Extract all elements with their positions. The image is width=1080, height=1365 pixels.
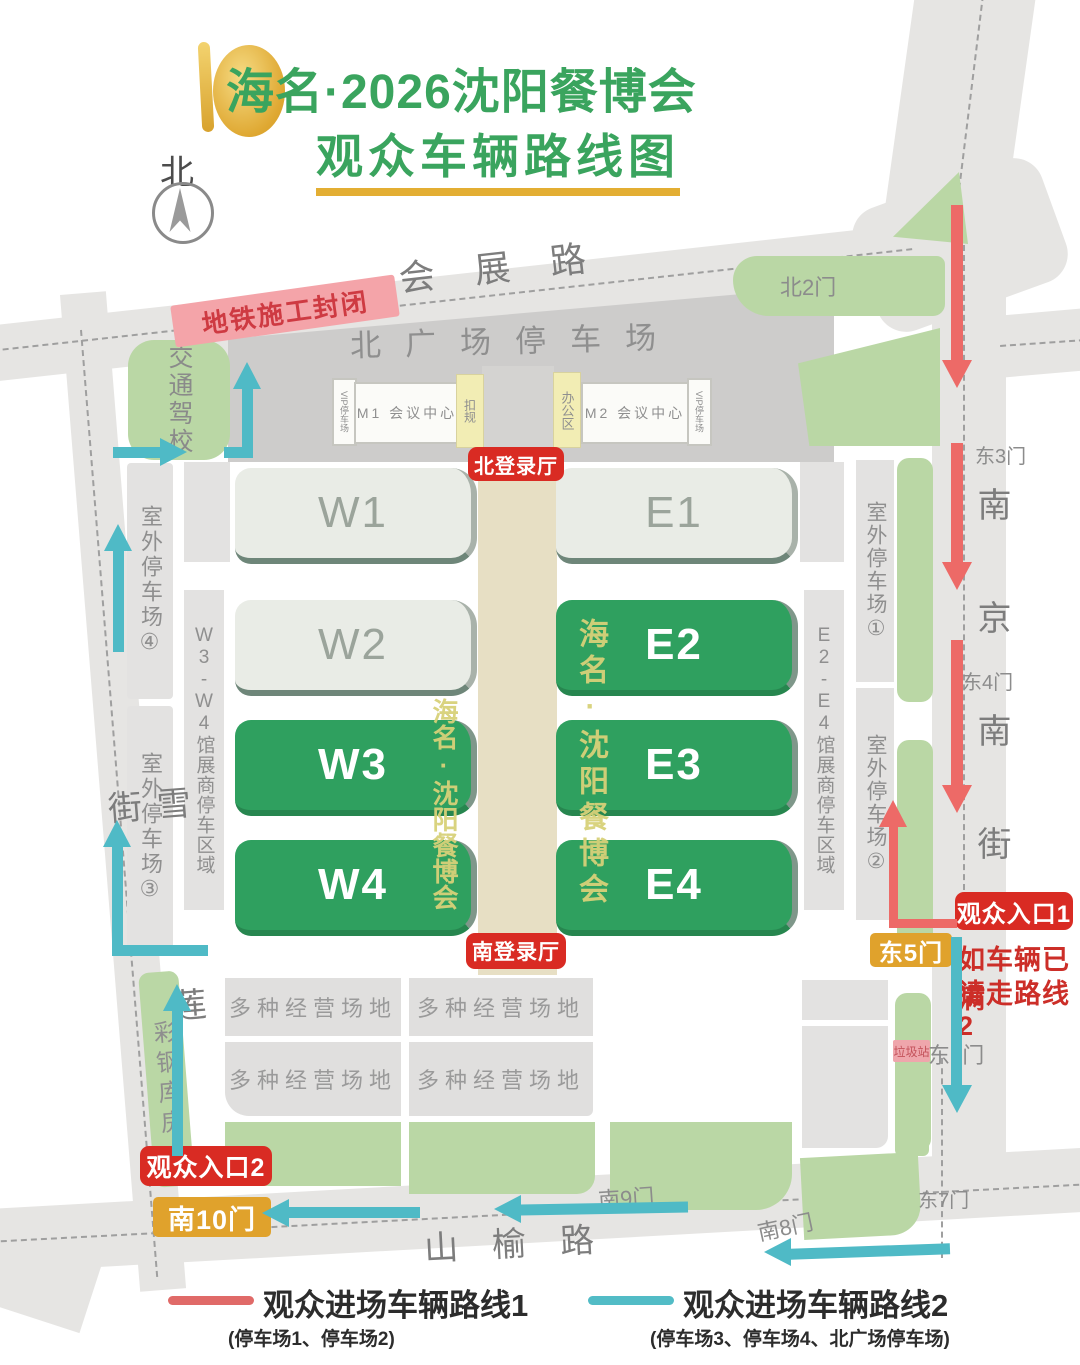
yellow-box-left: 扣规 [456, 374, 484, 448]
hall-e1-label: E1 [645, 488, 703, 538]
route1-turn-horizontal [889, 919, 957, 928]
legend-route1-sub: (停车场1、停车场2) [228, 1324, 395, 1351]
gate-east4-label: 东4门 [962, 666, 1013, 695]
road-nanjing-label: 南京南街 [967, 487, 1016, 939]
hall-e1: E1 [556, 468, 798, 564]
route2-south8-head [764, 1238, 791, 1266]
multi-business-3: 多种经营场地 [225, 1042, 401, 1116]
multi-business-2-label: 多种经营场地 [417, 991, 585, 1023]
outdoor-parking-1-label: 室外停车场① [860, 501, 890, 642]
office-area: 办公区 [553, 372, 581, 448]
route2-parking3-foot [112, 945, 208, 956]
green-strip-east-a [897, 458, 933, 702]
hall-w1-label: W1 [318, 488, 388, 538]
route2-school-head [160, 438, 187, 466]
e-exhibitor-parking: E2-E4馆展商停车区域 [804, 590, 844, 910]
unlabeled-block-right [800, 462, 844, 562]
multi-business-4: 多种经营场地 [409, 1042, 593, 1116]
legend-route2-sub: (停车场3、停车场4、北广场停车场) [650, 1324, 950, 1351]
route2-east-head [942, 1085, 972, 1113]
green-bottom-4 [800, 1152, 922, 1240]
hall-w4-label: W4 [318, 860, 388, 910]
multi-business-4-label: 多种经营场地 [417, 1063, 585, 1095]
vip-parking-left-label: VIP停车场 [338, 391, 351, 433]
hall-e2-label: E2 [645, 620, 703, 670]
brand-spoon-icon [198, 42, 215, 133]
legend-route1-swatch [168, 1296, 254, 1305]
entrance1-badge: 观众入口1 [955, 892, 1073, 930]
gate-north2-label: 北2门 [780, 270, 836, 302]
green-bottom-2 [409, 1122, 595, 1194]
office-area-label: 办公区 [558, 391, 577, 430]
green-north2-blob [733, 256, 945, 316]
south-lobby-badge: 南登录厅 [466, 933, 566, 969]
watermark-left: 海名·沈阳餐博会 [426, 698, 463, 910]
m2-conference-center: M2 会议中心 [581, 382, 689, 444]
hall-w2: W2 [235, 600, 477, 696]
route-map-canvas: 交通驾校 彩钢库房 室外停车场④ 室外停车场③ W3-W4馆展商停车区域 E2-… [0, 0, 1080, 1365]
multi-business-1-label: 多种经营场地 [229, 991, 397, 1023]
route1-arrow-2-shaft [951, 443, 963, 565]
route1-parking2-head [879, 800, 907, 827]
gate-east7-label: 东7门 [918, 1184, 969, 1213]
green-strip-east-b [897, 740, 933, 948]
hall-w2-label: W2 [318, 620, 388, 670]
gray-block-se-b [802, 1026, 888, 1148]
north-lobby-badge: 北登录厅 [468, 447, 564, 481]
hall-e4-label: E4 [645, 860, 703, 910]
legend-route2-swatch [588, 1296, 674, 1305]
route2-east-shaft [951, 937, 962, 1087]
route2-plaza-head [233, 362, 261, 389]
hall-w1: W1 [235, 468, 477, 564]
page-title-line2: 观众车辆路线图 [316, 118, 680, 196]
unlabeled-block-left [184, 462, 230, 562]
m1-label: M1 会议中心 [357, 403, 457, 423]
route2-warehouse-head [163, 984, 191, 1011]
yellow-box-left-label: 扣规 [462, 399, 479, 423]
gate-east5-badge: 东5门 [870, 933, 952, 967]
route2-warehouse-shaft [172, 1010, 183, 1156]
watermark-right: 海名·沈阳餐博会 [568, 618, 612, 909]
vip-parking-right-label: VIP停车场 [693, 391, 706, 433]
hall-e3-label: E3 [645, 740, 703, 790]
multi-business-2: 多种经营场地 [409, 978, 593, 1036]
route2-parking3-head [103, 820, 131, 847]
gate-east3-label: 东3门 [975, 440, 1026, 469]
entrance2-label: 观众入口2 [147, 1148, 266, 1184]
south-lobby-label: 南登录厅 [472, 936, 560, 966]
entrance2-badge: 观众入口2 [140, 1146, 272, 1186]
route2-south9-head [494, 1195, 521, 1223]
page-title-line1: 海名·2026沈阳餐博会 [226, 52, 697, 122]
north-plaza-label: 北广场停车场 [349, 312, 680, 366]
route1-arrow-1-head [942, 360, 972, 388]
route1-arrow-1-shaft [951, 205, 963, 363]
route2-parking4-head [104, 524, 132, 551]
gray-block-se-a [802, 980, 888, 1020]
route1-arrow-3-shaft [951, 640, 963, 788]
m1-conference-center: M1 会议中心 [354, 382, 460, 444]
e-exhibitor-parking-label: E2-E4馆展商停车区域 [811, 625, 838, 875]
entrance1-label: 观众入口1 [957, 894, 1071, 929]
route-notice-line2: 请走路线2 [958, 972, 1080, 1042]
route2-south8-shaft [790, 1243, 950, 1260]
gate-south10-label: 南10门 [168, 1198, 256, 1237]
gate-east5-label: 东5门 [879, 933, 943, 968]
green-bottom-5 [895, 1120, 929, 1156]
multi-business-1: 多种经营场地 [225, 978, 401, 1036]
route2-plaza-shaft [242, 386, 253, 458]
outdoor-parking-4-label: 室外停车场④ [134, 505, 166, 658]
route2-south10-head [262, 1199, 289, 1227]
route1-turn-vertical [889, 826, 898, 924]
route2-parking4-shaft [113, 550, 124, 652]
route1-arrow-2-head [942, 562, 972, 590]
corridor-top [482, 366, 554, 452]
route2-parking3-shaft [112, 846, 123, 951]
road-shanyu-label: 山榆路 [423, 1211, 629, 1271]
north-lobby-label: 北登录厅 [474, 450, 558, 479]
outdoor-parking-1: 室外停车场① [856, 460, 894, 682]
garbage-station-label: 垃圾站 [893, 1043, 929, 1060]
garbage-station-badge: 垃圾站 [893, 1040, 930, 1062]
legend-route2-label: 观众进场车辆路线2 [683, 1280, 948, 1325]
m2-label: M2 会议中心 [585, 403, 685, 423]
gate-south10-badge: 南10门 [153, 1197, 271, 1237]
central-corridor [478, 450, 557, 975]
multi-business-3-label: 多种经营场地 [229, 1063, 397, 1095]
route2-school-shaft [113, 447, 163, 458]
route1-arrow-3-head [942, 785, 972, 813]
route2-south10-shaft [288, 1207, 420, 1218]
hall-w3-label: W3 [318, 740, 388, 790]
outdoor-parking-4: 室外停车场④ [127, 463, 173, 699]
legend-route1-label: 观众进场车辆路线1 [263, 1280, 528, 1325]
vip-parking-right: VIP停车场 [687, 378, 712, 446]
